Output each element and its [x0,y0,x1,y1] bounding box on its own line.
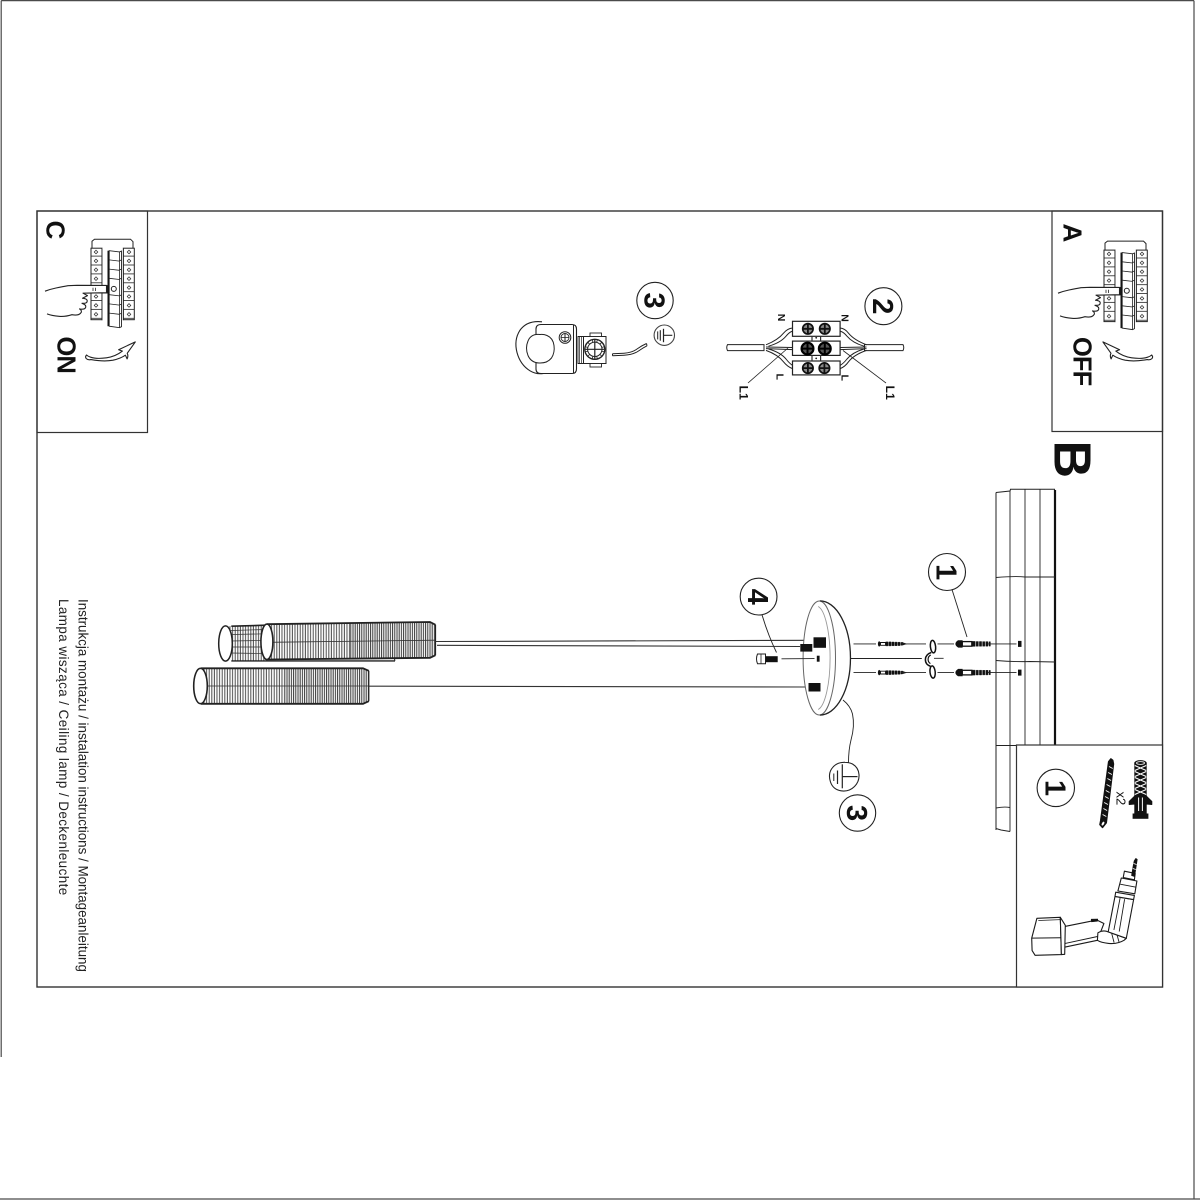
svg-text:L: L [774,374,786,381]
svg-text:L1: L1 [737,386,751,400]
svg-text:OFF: OFF [1068,337,1096,386]
svg-text:2: 2 [866,298,898,314]
svg-text:Lampa wisząca / Ceiling lamp /: Lampa wisząca / Ceiling lamp / Deckenleu… [56,599,71,896]
svg-text:1: 1 [930,564,962,580]
svg-text:L: L [839,375,851,382]
svg-text:ON: ON [52,337,80,373]
svg-text:1: 1 [1038,780,1070,796]
svg-text:L1: L1 [883,386,897,400]
svg-text:A: A [1058,224,1088,243]
svg-text:C: C [41,221,71,240]
svg-text:Instrukcja montażu / instalati: Instrukcja montażu / instalation instruc… [76,599,91,972]
svg-text:B: B [1043,441,1101,479]
svg-text:3: 3 [638,293,670,309]
svg-text:N: N [839,314,851,322]
svg-text:x2: x2 [1114,792,1129,806]
svg-text:4: 4 [741,589,773,605]
svg-text:N: N [775,314,787,322]
svg-text:3: 3 [840,805,872,821]
